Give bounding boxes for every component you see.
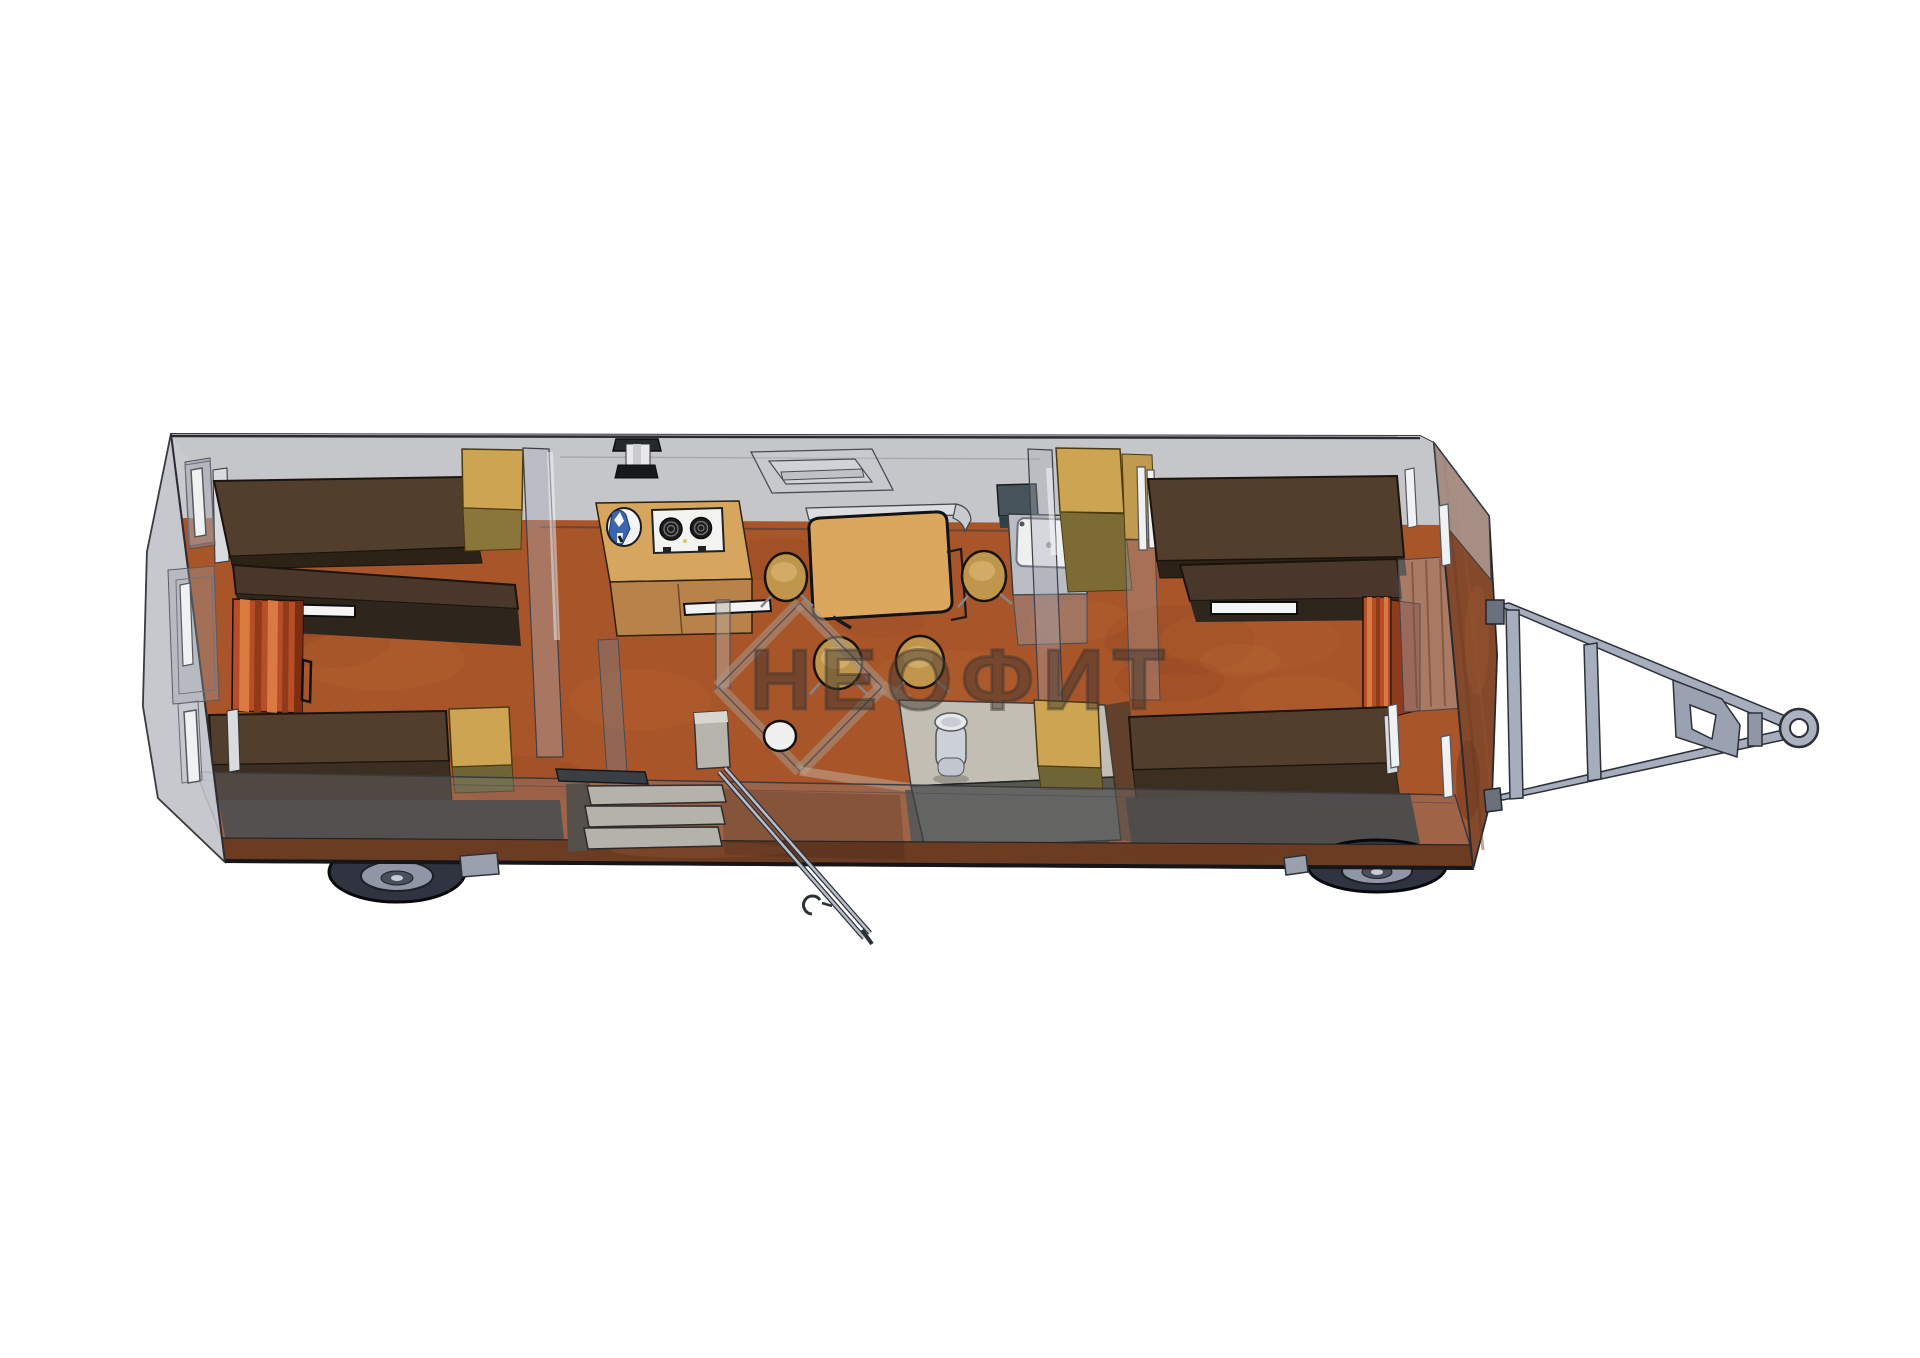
svg-text:НЕОФИТ: НЕОФИТ: [750, 633, 1174, 728]
